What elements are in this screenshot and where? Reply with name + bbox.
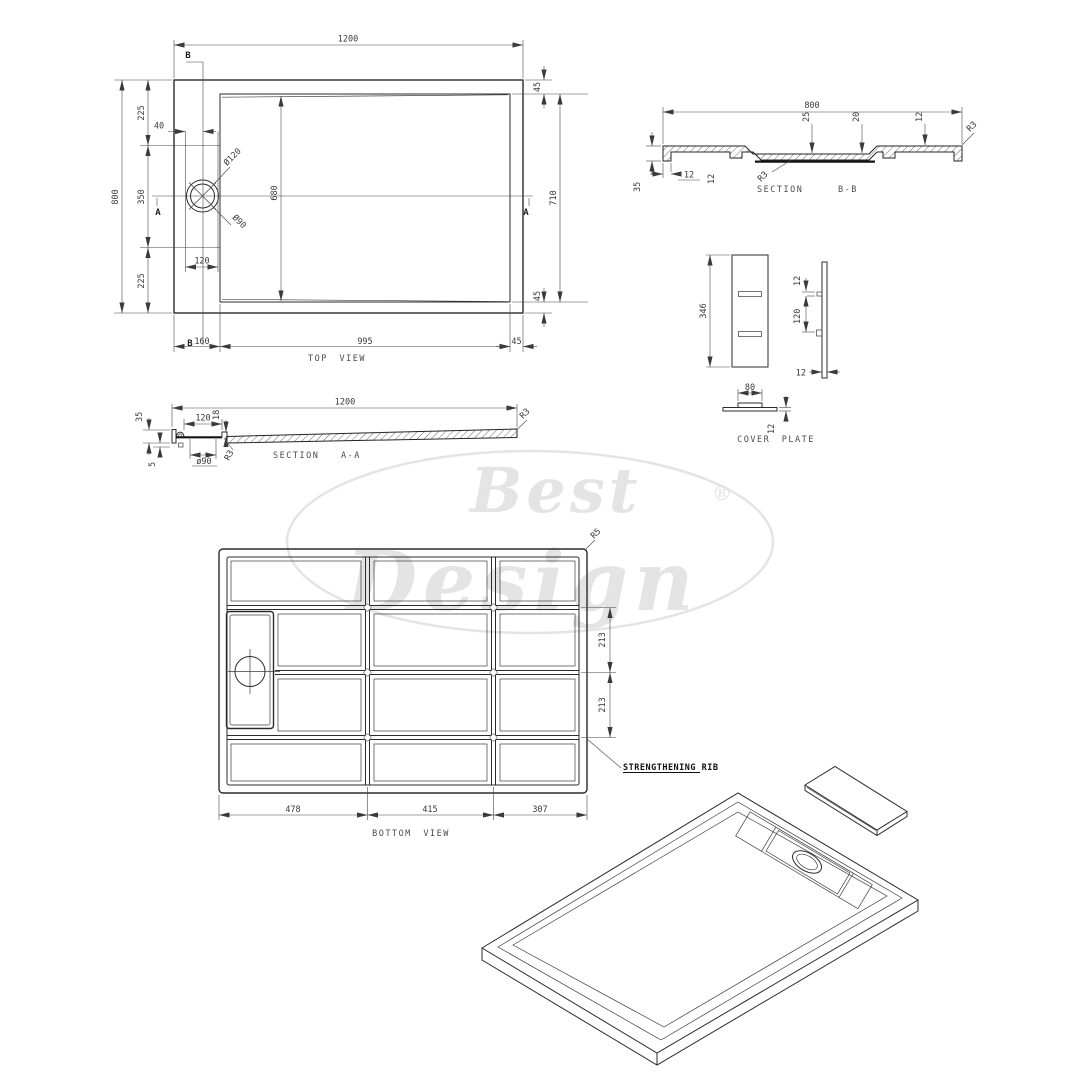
cover-plate-drawing: 346 12 120 12 80 12 COVER PLATE: [660, 240, 900, 460]
dim-45-bottom: 45: [511, 337, 521, 347]
iso-tray: [482, 793, 918, 1065]
bottom-view-label: BOTTOM VIEW: [372, 829, 450, 839]
dim-350: 350: [137, 189, 147, 204]
section-aa-drawing: 1200 35 5 120 18 ø90 R3 R: [125, 380, 570, 480]
dim-5: 5: [148, 462, 158, 467]
drain-recess: [227, 612, 281, 729]
section-bb-label: SECTION: [757, 185, 803, 195]
dim-478: 478: [285, 805, 300, 815]
dim-800: 800: [804, 101, 819, 111]
cover-plate-label: COVER PLATE: [737, 435, 815, 445]
dim-225-top: 225: [137, 105, 147, 120]
iso-cover-plate: [805, 767, 907, 836]
cover-plate-bottom-view: [723, 403, 777, 411]
dim-20: 20: [852, 112, 862, 122]
section-aa-label: SECTION: [273, 451, 319, 461]
dim-25: 25: [802, 112, 812, 122]
dim-45-top-right: 45: [533, 82, 543, 92]
dim-213-b: 213: [598, 697, 608, 712]
section-marker-b-bottom: B: [187, 339, 193, 349]
radius-r3-corner: R3: [965, 120, 979, 134]
dim-225-bottom: 225: [137, 273, 147, 288]
section-aa-name: A-A: [341, 451, 361, 461]
radius-r3-center: R3: [756, 170, 770, 184]
dim-40: 40: [154, 122, 164, 132]
dim-1200: 1200: [338, 35, 358, 45]
top-view-outline: [174, 80, 523, 313]
technical-drawing-sheet: Best Design ® A A: [0, 0, 1080, 1080]
dim-680: 680: [270, 185, 280, 200]
dim-12-tab: 12: [793, 276, 803, 286]
dim-800: 800: [111, 189, 121, 204]
isometric-view-drawing: [455, 755, 965, 1080]
dim-995: 995: [357, 337, 372, 347]
radius-r5: R5: [589, 527, 603, 541]
section-bb-name: B-B: [838, 185, 858, 195]
rib-grid: [227, 557, 579, 785]
dim-160: 160: [194, 337, 209, 347]
top-view-label: TOP VIEW: [308, 354, 366, 364]
cover-plate-front-view: [732, 255, 768, 367]
dim-12-side: 12: [796, 369, 806, 379]
dim-120: 120: [195, 414, 210, 424]
dim-1200: 1200: [335, 398, 355, 408]
dim-35: 35: [135, 412, 145, 422]
section-marker-b-top: B: [185, 51, 191, 61]
dim-80: 80: [745, 383, 755, 393]
section-bb-profile: [663, 146, 962, 162]
dim-dia90: Ø90: [230, 212, 249, 231]
dim-18: 18: [212, 410, 222, 420]
radius-r3-left: R3: [223, 449, 237, 463]
section-bb-drawing: 800 25 20 12 R3 R3 35 12 12 SECTION: [615, 75, 1050, 215]
dim-12-a: 12: [684, 171, 694, 181]
section-marker-a-right: A: [523, 208, 529, 218]
registered-mark-icon: ®: [712, 481, 732, 505]
dim-dia120: Ø120: [221, 146, 243, 168]
dim-35: 35: [633, 182, 643, 192]
section-aa-profile: [172, 429, 517, 447]
dim-12-bottom: 12: [767, 424, 777, 434]
section-lines: A A B B: [152, 51, 533, 349]
dim-213-a: 213: [598, 632, 608, 647]
dim-dia90: ø90: [196, 457, 211, 467]
section-marker-a-left: A: [155, 208, 161, 218]
cover-plate-side-view: [817, 262, 828, 378]
dim-45-bottom-right: 45: [533, 291, 543, 301]
dim-346: 346: [699, 303, 709, 318]
radius-r3-right: R3: [518, 407, 532, 421]
dim-710: 710: [549, 190, 559, 205]
dim-12-top: 12: [915, 112, 925, 122]
dim-12-b: 12: [707, 174, 717, 184]
top-view-drawing: A A B B 1200 800: [100, 20, 610, 380]
dim-120: 120: [194, 257, 209, 267]
dim-120: 120: [793, 309, 803, 324]
dim-415: 415: [422, 805, 437, 815]
